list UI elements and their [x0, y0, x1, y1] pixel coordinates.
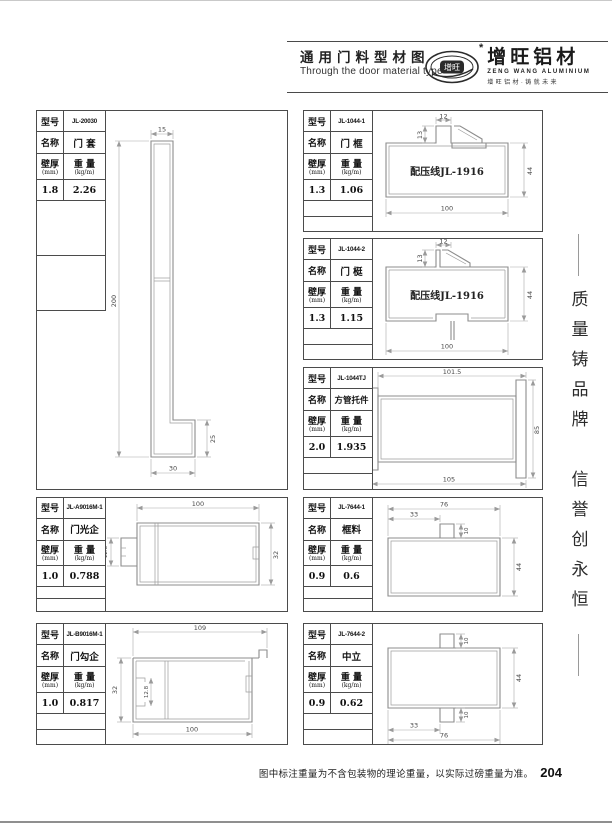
- dim-label: 32: [272, 551, 280, 559]
- profile-note: 配压线JL-1916: [410, 289, 484, 302]
- logo-text-block: 增旺铝材 ZENG WANG ALUMINIUM 增旺铝材·铸就未来: [487, 48, 590, 86]
- slogan-line-2: 信誉创永恒: [566, 470, 591, 620]
- model-label: 型号: [304, 624, 331, 644]
- brand-logo: 增旺 * 增旺铝材 ZENG WANG ALUMINIUM 增旺铝材·铸就未来: [424, 44, 606, 90]
- empty-row: [304, 217, 372, 232]
- dimension-annotations: 15 200 25 30: [110, 126, 217, 478]
- spec-table: 型号JL-1044-2 名称门 梃 壁厚(mm) 重 量(kg/m) 1.31.…: [304, 239, 373, 359]
- dim-label: 44: [526, 167, 534, 175]
- profile-drawing-jl-1044-1: 配压线JL-1916 12 13 100 44: [372, 113, 542, 229]
- page-subtitle: Through the door material type: [300, 66, 443, 77]
- empty-row: [304, 345, 372, 360]
- panel-jl-20030: 型号JL-20030 名称门 套 壁厚(mm) 重 量(kg/m) 1.82.2…: [36, 110, 288, 490]
- logo-oval-text: 增旺: [444, 62, 460, 72]
- model-label: 型号: [37, 111, 64, 131]
- brand-tagline: 增旺铝材·铸就未来: [487, 77, 590, 86]
- empty-row: [37, 714, 105, 730]
- panel-jl-7644-1: 型号JL-7644-1 名称框料 壁厚(mm) 重 量(kg/m) 0.90.6…: [303, 497, 543, 612]
- weight-value: 2.26: [64, 180, 105, 200]
- side-slogan: 质量铸品牌 信誉创永恒: [565, 234, 591, 676]
- panel-jl-7644-2: 型号JL-7644-2 名称中立 壁厚(mm) 重 量(kg/m) 0.90.6…: [303, 623, 543, 745]
- model-value: JL-1044-2: [331, 239, 372, 259]
- name-value: 门 框: [331, 132, 372, 153]
- profile-outline: [151, 141, 195, 457]
- profile-outline: [372, 380, 526, 478]
- dim-label: 10: [464, 527, 470, 534]
- weight-header: 重 量(kg/m): [331, 154, 372, 179]
- dim-label: 10: [464, 637, 470, 644]
- model-label: 型号: [37, 498, 64, 518]
- model-value: JL-7644-1: [331, 498, 372, 518]
- panel-jl-b9016m-1: 型号JL-B9016M-1 名称门勾企 壁厚(mm) 重 量(kg/m) 1.0…: [36, 623, 288, 745]
- dim-label: 100: [192, 500, 204, 508]
- profile-drawing-jl-7644-2: 10 44 10 33 76: [364, 624, 544, 746]
- weight-header: 重 量(kg/m): [331, 282, 372, 307]
- dim-label: 101.5: [443, 368, 462, 376]
- dim-label: 44: [515, 563, 523, 571]
- empty-row: [304, 599, 372, 611]
- name-label: 名称: [304, 519, 331, 540]
- page-title: 通用门料型材图: [300, 46, 430, 66]
- weight-value: 1.15: [331, 308, 372, 328]
- weight-header: 重 量(kg/m): [64, 154, 105, 179]
- spec-table: 型号JL-7644-2 名称中立 壁厚(mm) 重 量(kg/m) 0.90.6…: [304, 624, 373, 744]
- name-label: 名称: [304, 645, 331, 666]
- dim-label: 33: [410, 722, 418, 730]
- name-value: 门 套: [64, 132, 105, 153]
- empty-row: [37, 730, 105, 745]
- profile-drawing-jl-b9016m-1: 109 32 12.8 100: [99, 624, 287, 746]
- dim-label: 15: [158, 126, 166, 134]
- dim-label: 32: [111, 686, 119, 694]
- profile-drawing-jl-a9016m-1: 100 12.8 32: [99, 500, 287, 611]
- thickness-value: 1.0: [37, 566, 64, 586]
- profile-outline: [133, 650, 267, 722]
- name-value: 门勾企: [64, 645, 105, 666]
- model-value: JL-1044-1: [331, 111, 372, 131]
- page-number: 204: [540, 765, 562, 780]
- thickness-value: 1.3: [304, 180, 331, 200]
- dim-label: 105: [443, 476, 455, 484]
- weight-header: 重 量(kg/m): [331, 667, 372, 692]
- name-label: 名称: [37, 519, 64, 540]
- logo-oval-icon: 增旺: [424, 48, 482, 86]
- model-value: JL-1044TJ: [331, 368, 372, 388]
- panel-jl-1044tj: 型号JL-1044TJ 名称方管托件 壁厚(mm) 重 量(kg/m) 2.01…: [303, 367, 543, 490]
- profile-drawing-jl-1044tj: 101.5 85 105: [370, 368, 542, 491]
- empty-row: [304, 730, 372, 745]
- dim-label: 44: [526, 291, 534, 299]
- weight-header: 重 量(kg/m): [331, 541, 372, 566]
- thickness-value: 1.8: [37, 180, 64, 200]
- catalog-page: 通用门料型材图 Through the door material type 增…: [0, 0, 612, 825]
- profile-outline: [388, 524, 500, 596]
- dimension-annotations: 109 32 12.8 100: [111, 624, 267, 738]
- dim-label: 100: [186, 726, 198, 734]
- spec-table: 型号JL-7644-1 名称框料 壁厚(mm) 重 量(kg/m) 0.90.6: [304, 498, 373, 611]
- model-value: JL-B9016M-1: [64, 624, 105, 644]
- name-value: 方管托件: [331, 389, 372, 410]
- name-label: 名称: [37, 132, 64, 153]
- empty-row: [304, 474, 372, 489]
- model-value: JL-7644-2: [331, 624, 372, 644]
- dim-label: 12.8: [144, 685, 150, 698]
- model-label: 型号: [304, 111, 331, 131]
- weight-header: 重 量(kg/m): [64, 541, 105, 566]
- profile-drawing-jl-1044-2: 配压线JL-1916 12 13 100 44: [372, 239, 542, 361]
- weight-header: 重 量(kg/m): [331, 411, 372, 436]
- weight-value: 1.06: [331, 180, 372, 200]
- spec-table: 型号JL-1044TJ 名称方管托件 壁厚(mm) 重 量(kg/m) 2.01…: [304, 368, 373, 489]
- profile-outline: [386, 126, 508, 197]
- thickness-header: 壁厚(mm): [37, 154, 64, 179]
- thickness-header: 壁厚(mm): [37, 541, 64, 566]
- logo-star-icon: *: [479, 42, 483, 54]
- thickness-value: 1.3: [304, 308, 331, 328]
- spec-table: 型号JL-1044-1 名称门 框 壁厚(mm) 重 量(kg/m) 1.31.…: [304, 111, 373, 231]
- dim-label: 85: [533, 426, 541, 434]
- thickness-value: 2.0: [304, 437, 331, 457]
- brand-name-en: ZENG WANG ALUMINIUM: [487, 69, 590, 75]
- dim-label: 200: [110, 295, 118, 307]
- footer-note: 图中标注重量为不含包装物的理论重量，以实际过磅重量为准。: [259, 766, 533, 780]
- header-top-rule: [287, 41, 608, 42]
- thickness-header: 壁厚(mm): [304, 154, 331, 179]
- empty-row: [304, 714, 372, 730]
- name-label: 名称: [304, 132, 331, 153]
- dim-label: 100: [441, 205, 453, 213]
- weight-value: 1.935: [331, 437, 372, 457]
- dim-label: 13: [416, 131, 424, 139]
- model-label: 型号: [304, 368, 331, 388]
- page-footer: 图中标注重量为不含包装物的理论重量，以实际过磅重量为准。 204: [259, 765, 562, 780]
- thickness-header: 壁厚(mm): [304, 282, 331, 307]
- profile-outline: [388, 634, 500, 722]
- empty-row: [37, 587, 105, 599]
- slogan-line-1: 质量铸品牌: [566, 290, 591, 440]
- weight-value: 0.6: [331, 566, 372, 586]
- dimension-annotations: 100 12.8 32: [103, 500, 280, 585]
- thickness-value: 0.9: [304, 693, 331, 713]
- panel-jl-1044-2: 型号JL-1044-2 名称门 梃 壁厚(mm) 重 量(kg/m) 1.31.…: [303, 238, 543, 360]
- thickness-header: 壁厚(mm): [304, 411, 331, 436]
- model-label: 型号: [304, 498, 331, 518]
- empty-row: [304, 329, 372, 345]
- weight-value: 0.817: [64, 693, 105, 713]
- thickness-value: 0.9: [304, 566, 331, 586]
- weight-value: 0.788: [64, 566, 105, 586]
- model-label: 型号: [37, 624, 64, 644]
- name-label: 名称: [37, 645, 64, 666]
- name-label: 名称: [304, 260, 331, 281]
- dimension-annotations: 10 44 10 33 76: [388, 634, 523, 744]
- brand-name: 增旺铝材: [487, 48, 590, 68]
- spec-table: 型号JL-B9016M-1 名称门勾企 壁厚(mm) 重 量(kg/m) 1.0…: [37, 624, 106, 744]
- model-value: JL-A9016M-1: [64, 498, 105, 518]
- page-top-edge: [0, 0, 612, 1]
- empty-row: [37, 201, 105, 256]
- dim-label: 10: [464, 711, 470, 718]
- spec-table: 型号JL-A9016M-1 名称门光企 壁厚(mm) 重 量(kg/m) 1.0…: [37, 498, 106, 611]
- name-value: 门 梃: [331, 260, 372, 281]
- dim-label: 25: [209, 435, 217, 443]
- panel-jl-1044-1: 型号JL-1044-1 名称门 框 壁厚(mm) 重 量(kg/m) 1.31.…: [303, 110, 543, 232]
- profile-note: 配压线JL-1916: [410, 165, 484, 178]
- dim-label: 76: [440, 732, 448, 740]
- dimension-annotations: 12 13 100 44: [386, 113, 534, 217]
- page-bottom-edge: [0, 821, 612, 823]
- profile-drawing-jl-7644-1: 76 33 10 44: [364, 500, 544, 611]
- dim-label: 44: [515, 674, 523, 682]
- model-value: JL-20030: [64, 111, 105, 131]
- name-label: 名称: [304, 389, 331, 410]
- name-value: 中立: [331, 645, 372, 666]
- panel-jl-a9016m-1: 型号JL-A9016M-1 名称门光企 壁厚(mm) 重 量(kg/m) 1.0…: [36, 497, 288, 612]
- slogan-top-line: [578, 234, 579, 276]
- thickness-header: 壁厚(mm): [304, 541, 331, 566]
- dim-label: 109: [194, 624, 206, 632]
- weight-value: 0.62: [331, 693, 372, 713]
- empty-row: [304, 587, 372, 599]
- thickness-header: 壁厚(mm): [304, 667, 331, 692]
- dim-label: 100: [441, 343, 453, 351]
- empty-row: [304, 201, 372, 217]
- dim-label: 12: [439, 113, 447, 121]
- weight-header: 重 量(kg/m): [64, 667, 105, 692]
- dim-label: 30: [169, 465, 177, 473]
- dim-label: 76: [440, 501, 448, 509]
- thickness-value: 1.0: [37, 693, 64, 713]
- dim-label: 13: [416, 254, 424, 262]
- dim-label: 12: [439, 239, 447, 246]
- empty-row: [37, 599, 105, 611]
- name-value: 框料: [331, 519, 372, 540]
- slogan-bottom-line: [578, 634, 579, 676]
- profile-drawing-jl-20030: 15 200 25 30: [107, 125, 287, 485]
- empty-row: [37, 256, 105, 310]
- dim-label: 33: [410, 511, 418, 519]
- profile-outline: [121, 523, 259, 585]
- empty-row: [304, 458, 372, 474]
- model-label: 型号: [304, 239, 331, 259]
- dimension-annotations: 76 33 10 44: [388, 501, 523, 597]
- spec-table: 型号JL-20030 名称门 套 壁厚(mm) 重 量(kg/m) 1.82.2…: [37, 111, 106, 311]
- header-bottom-rule: [287, 92, 608, 93]
- thickness-header: 壁厚(mm): [37, 667, 64, 692]
- name-value: 门光企: [64, 519, 105, 540]
